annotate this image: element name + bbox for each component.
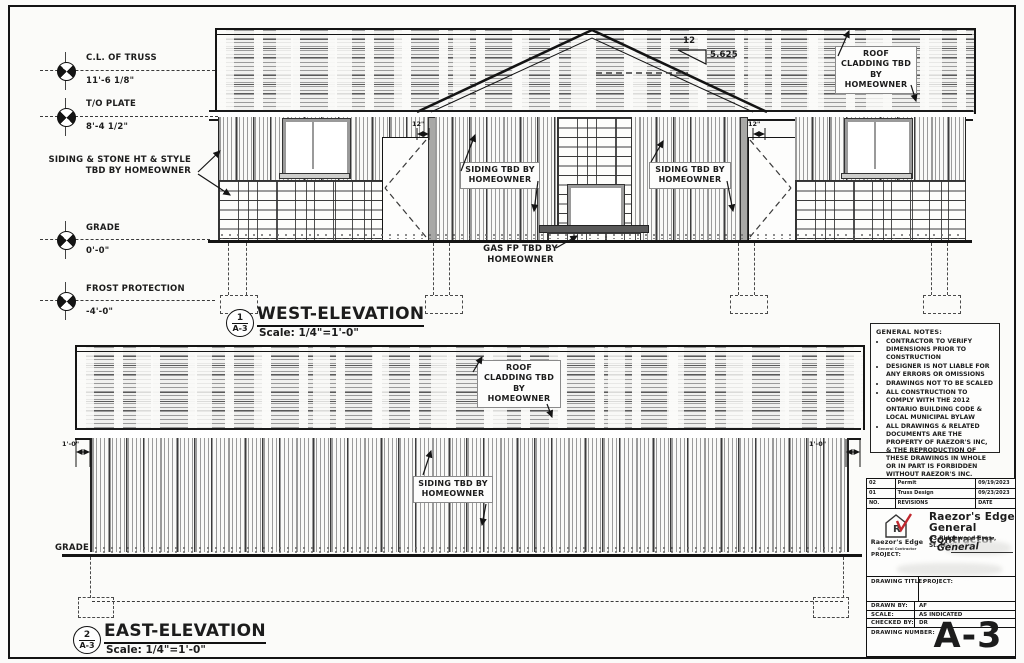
west-window-right-sill [841, 173, 912, 179]
handwritten-underline [951, 552, 1013, 553]
west-siding-note-left: SIDING TBD BY HOMEOWNER [460, 162, 540, 189]
foundation-line [90, 557, 91, 598]
general-notes-title: GENERAL NOTES: [876, 328, 994, 336]
east-callout-bubble: 2 A-3 [73, 626, 101, 654]
datum-symbol-plate [57, 108, 76, 127]
divider [914, 601, 915, 627]
foundation-line [738, 243, 739, 295]
revision-desc: Permit [896, 479, 977, 488]
east-roof-note: ROOF CLADDING TBD BY HOMEOWNER [477, 360, 561, 408]
datum-value-grade: 0'-0" [86, 246, 109, 257]
footing [78, 597, 114, 618]
west-roof-ridge-line [215, 34, 972, 35]
west-window-left-sill [279, 173, 350, 179]
west-window-left-mullion [312, 122, 314, 169]
west-door-left [382, 137, 430, 242]
east-roof [75, 345, 865, 430]
east-elevation-scale: Scale: 1/4"=1'-0" [106, 644, 206, 656]
east-overhang-dim-left: 1'-0" [62, 440, 79, 448]
footing [923, 295, 961, 314]
project-label: PROJECT: [871, 552, 901, 558]
footing [425, 295, 463, 314]
west-porch-post-right [740, 117, 748, 242]
west-base-stipple [218, 233, 965, 239]
datum-symbol-frost [57, 292, 76, 311]
checked-by-label: CHECKED BY: [871, 620, 914, 626]
revision-desc: Truss Design [896, 489, 977, 498]
general-notes-list: CONTRACTOR TO VERIFY DIMENSIONS PRIOR TO… [876, 338, 994, 487]
datum-value-truss: 11'-6 1/8" [86, 76, 134, 87]
revision-header-no: NO. [867, 499, 896, 508]
west-elevation-scale: Scale: 1/4"=1'-0" [259, 327, 359, 339]
revision-row: 01 Truss Design 09/23/2023 [867, 489, 1015, 499]
general-note-item: DESIGNER IS NOT LIABLE FOR ANY ERRORS OR… [886, 363, 994, 379]
logo-subtitle: General Contractor [867, 547, 927, 551]
drawing-title-label: DRAWING TITLE: [871, 579, 925, 585]
title-block: 02 Permit 09/19/2023 01 Truss Design 09/… [866, 478, 1016, 657]
foundation-line [931, 243, 932, 295]
east-overhang-dim-right: 1'-0" [809, 440, 826, 448]
west-window-right-mullion [874, 122, 876, 169]
drawn-by-label: DRAWN BY: [871, 603, 908, 609]
company-logo-icon: R [880, 511, 914, 539]
west-callout-bubble: 1 A-3 [226, 309, 254, 337]
foundation-line [947, 243, 948, 295]
revision-date: 09/19/2023 [976, 479, 1015, 488]
datum-value-plate: 8'-4 1/2" [86, 122, 128, 133]
east-roof-ridge-line [75, 351, 861, 352]
datum-label-plate: T/O PLATE [86, 99, 136, 110]
drawing-number: A-3 [925, 619, 1011, 654]
foundation-line [433, 243, 434, 295]
revision-no: 02 [867, 479, 896, 488]
foundation-line [228, 243, 229, 295]
east-callout-sheet: A-3 [79, 640, 94, 650]
slope-rise-label: 12 [683, 36, 695, 47]
revision-row: 02 Permit 09/19/2023 [867, 479, 1015, 489]
datum-label-grade: GRADE [86, 223, 120, 234]
west-siding-note-right: SIDING TBD BY HOMEOWNER [649, 162, 731, 189]
foundation-line [92, 601, 843, 602]
drawn-by-value: AF [919, 603, 927, 609]
west-door-right [748, 137, 796, 242]
west-grade-line [208, 240, 972, 243]
general-notes-panel: GENERAL NOTES: CONTRACTOR TO VERIFY DIME… [870, 323, 1000, 453]
foundation-line [754, 243, 755, 295]
general-note-item: ALL CONSTRUCTION TO COMPLY WITH THE 2012… [886, 389, 994, 421]
logo-name: Raezor's Edge [867, 539, 927, 546]
east-siding-note: SIDING TBD BY HOMEOWNER [413, 476, 493, 503]
datum-label-frost: FROST PROTECTION [86, 284, 185, 295]
foundation-line [246, 243, 247, 295]
foundation-line [843, 557, 844, 598]
whiteout-smudge [897, 563, 1002, 576]
footing [730, 295, 768, 314]
datum-symbol-grade [57, 231, 76, 250]
west-window-right [845, 119, 912, 178]
revision-no: 01 [867, 489, 896, 498]
gas-fireplace-note: GAS FP TBD BY HOMEOWNER [468, 244, 573, 266]
east-grade-label: GRADE [55, 543, 89, 554]
drawing-sheet: C.L. OF TRUSS 11'-6 1/8" T/O PLATE 8'-4 … [0, 0, 1024, 663]
revision-header-row: NO. REVISIONS DATE [867, 499, 1015, 509]
west-window-left [283, 119, 350, 178]
divider [867, 576, 1015, 577]
foundation-line [449, 243, 450, 295]
west-callout-number: 1 [237, 314, 243, 323]
datum-value-frost: -4'-0" [86, 307, 113, 318]
slope-run-label: 5.625 [710, 50, 738, 61]
footing [813, 597, 849, 618]
siding-stone-note: SIDING & STONE HT & STYLE TBD BY HOMEOWN… [28, 155, 191, 177]
east-base-stipple [92, 546, 843, 553]
west-fireplace-opening [568, 185, 624, 229]
divider [867, 601, 1015, 602]
west-door-dim-left: 12" [412, 120, 424, 128]
project-label-2: PROJECT: [923, 579, 953, 585]
east-callout-number: 2 [84, 631, 90, 640]
west-callout-sheet: A-3 [232, 323, 247, 333]
west-door-dim-right: 12" [748, 120, 760, 128]
revision-header-date: DATE [976, 499, 1015, 508]
general-note-item: CONTRACTOR TO VERIFY DIMENSIONS PRIOR TO… [886, 338, 994, 362]
datum-label-truss: C.L. OF TRUSS [86, 53, 157, 64]
datum-symbol-truss [57, 62, 76, 81]
divider [867, 610, 1015, 611]
east-grade-line [62, 554, 862, 557]
west-roof-note: ROOF CLADDING TBD BY HOMEOWNER [835, 46, 917, 94]
revision-header-desc: REVISIONS [896, 499, 977, 508]
revisions-table: 02 Permit 09/19/2023 01 Truss Design 09/… [867, 479, 1015, 509]
revision-date: 09/23/2023 [976, 489, 1015, 498]
east-elevation-title: EAST-ELEVATION [104, 621, 266, 644]
west-elevation-title: WEST-ELEVATION [257, 304, 424, 327]
general-note-item: DRAWINGS NOT TO BE SCALED [886, 380, 994, 388]
